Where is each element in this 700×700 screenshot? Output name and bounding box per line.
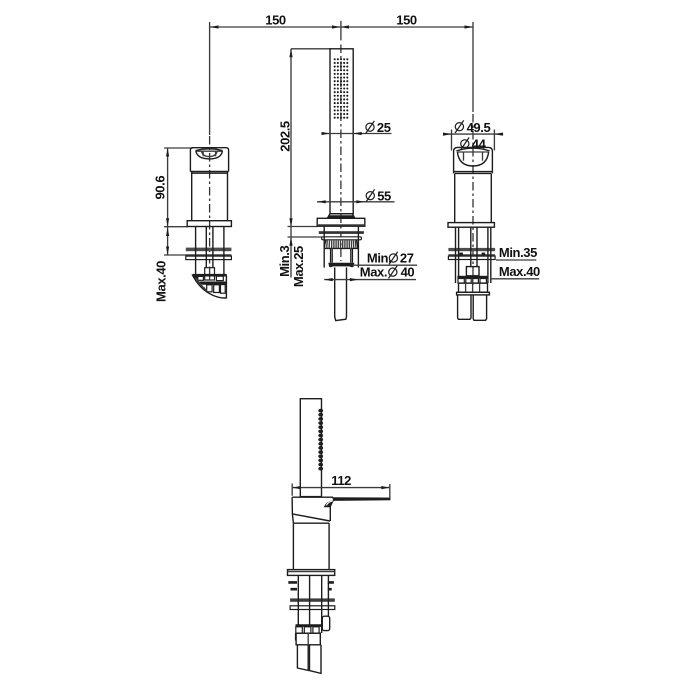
svg-text:Max.25: Max.25 bbox=[291, 246, 306, 287]
svg-text:150: 150 bbox=[396, 12, 417, 27]
svg-text:55: 55 bbox=[377, 189, 391, 204]
svg-text:Max.40: Max.40 bbox=[153, 261, 168, 302]
svg-text:Min.: Min. bbox=[367, 251, 391, 266]
svg-text:Max.: Max. bbox=[360, 265, 387, 280]
svg-text:112: 112 bbox=[331, 473, 351, 488]
svg-text:Max.40: Max.40 bbox=[499, 264, 540, 279]
svg-text:150: 150 bbox=[265, 12, 286, 27]
svg-text:40: 40 bbox=[401, 265, 415, 280]
svg-text:27: 27 bbox=[400, 251, 414, 266]
svg-text:Min.35: Min.35 bbox=[499, 245, 537, 260]
svg-text:90.6: 90.6 bbox=[153, 176, 168, 200]
svg-text:202.5: 202.5 bbox=[278, 121, 293, 152]
svg-text:49.5: 49.5 bbox=[467, 120, 491, 135]
svg-text:25: 25 bbox=[377, 120, 391, 135]
